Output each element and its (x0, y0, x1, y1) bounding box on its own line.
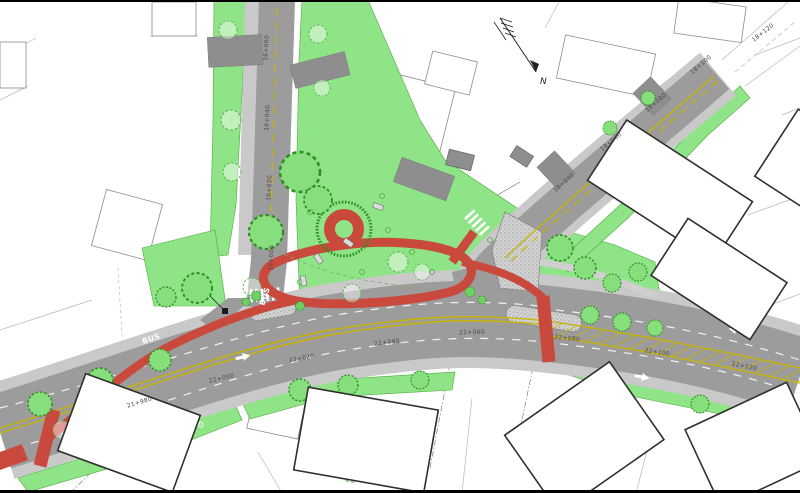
cycle-crossing-east (543, 296, 549, 362)
signal-box (222, 308, 228, 314)
north-label: N (540, 77, 547, 87)
station-label: 16+000 (267, 245, 275, 271)
plan-svg: 21+980 22+000 22+020 22+040 22+060 22+08… (0, 0, 800, 493)
station-label: 16+060 (262, 35, 270, 61)
station-label: 16+040 (263, 105, 271, 131)
station-label: 16+020 (265, 175, 273, 201)
north-arrow-icon: N (494, 18, 547, 87)
utility-structure (510, 146, 534, 168)
station-label: 22+060 (459, 329, 485, 337)
station-label: 18+120 (751, 22, 776, 43)
plan-drawing: 21+980 22+000 22+020 22+040 22+060 22+08… (0, 0, 800, 493)
